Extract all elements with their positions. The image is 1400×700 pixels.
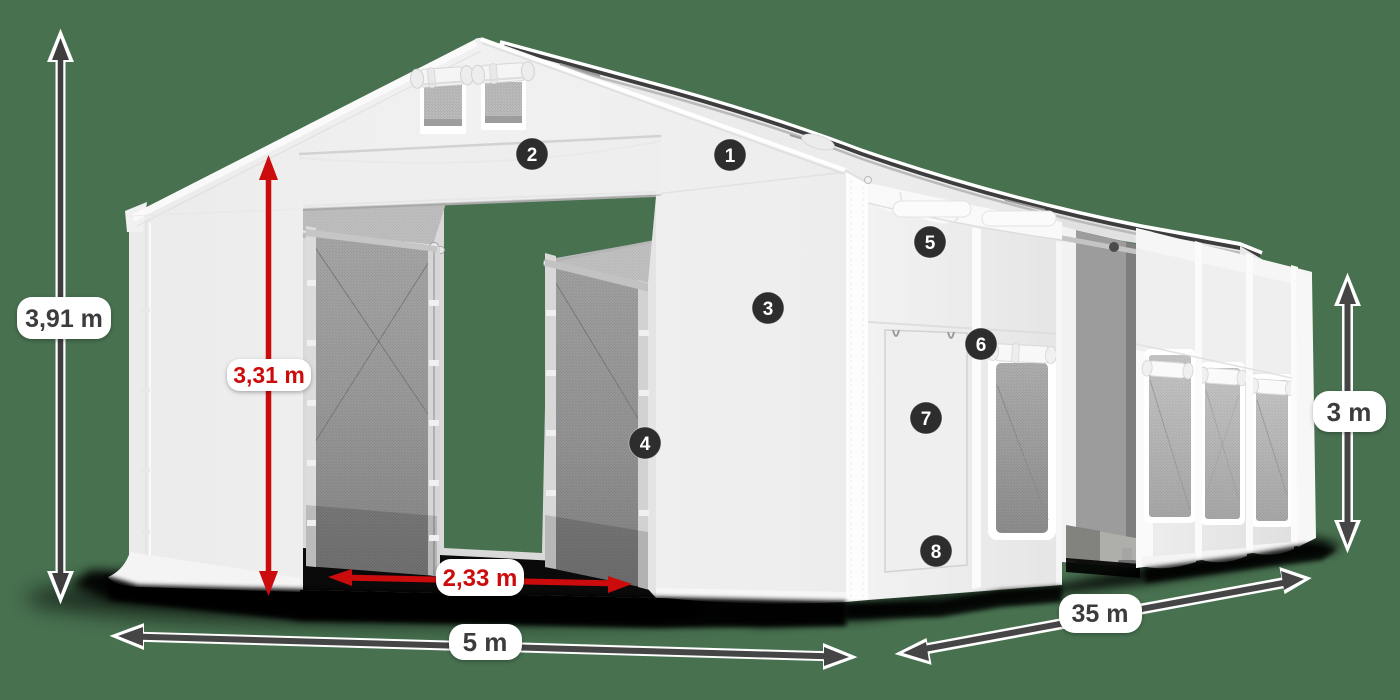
svg-text:1: 1 xyxy=(725,146,736,167)
svg-text:5 m: 5 m xyxy=(463,627,508,657)
svg-text:3,31 m: 3,31 m xyxy=(233,362,305,388)
svg-text:5: 5 xyxy=(925,233,936,254)
svg-text:2: 2 xyxy=(527,145,538,166)
svg-text:2,33 m: 2,33 m xyxy=(443,565,518,592)
svg-text:35 m: 35 m xyxy=(1072,600,1129,628)
svg-text:6: 6 xyxy=(976,335,987,356)
svg-text:7: 7 xyxy=(921,409,932,430)
svg-text:3: 3 xyxy=(763,299,774,320)
svg-text:3,91 m: 3,91 m xyxy=(25,305,103,333)
svg-text:4: 4 xyxy=(640,434,651,455)
svg-text:8: 8 xyxy=(931,542,942,563)
svg-text:3 m: 3 m xyxy=(1327,397,1372,427)
